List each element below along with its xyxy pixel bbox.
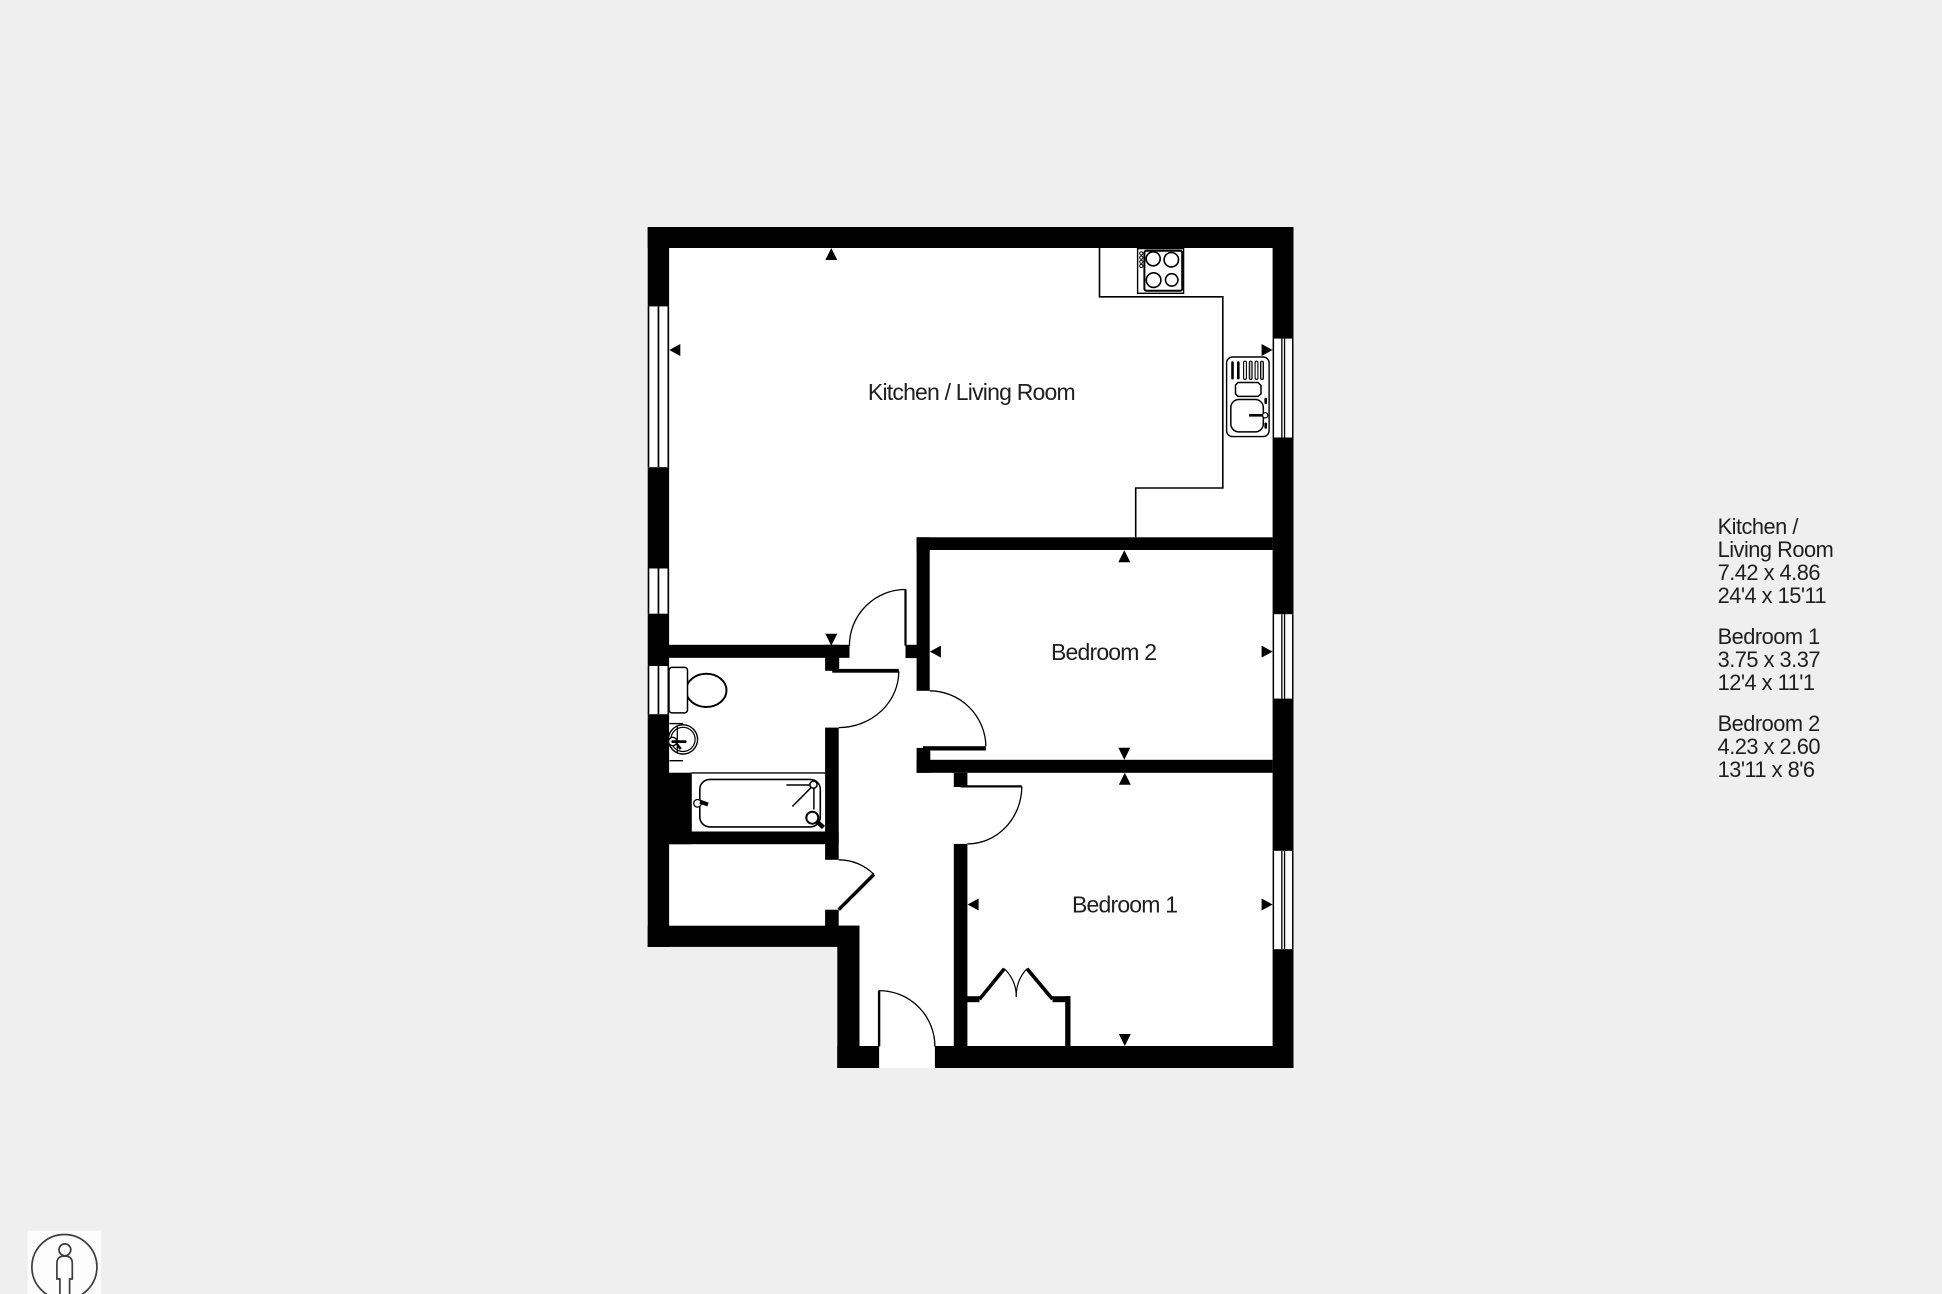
svg-text:Kitchen /: Kitchen / [1718,514,1800,539]
svg-text:24'4 x 15'11: 24'4 x 15'11 [1718,583,1827,608]
svg-text:Kitchen / Living Room: Kitchen / Living Room [868,379,1075,405]
svg-text:Bedroom 1: Bedroom 1 [1072,892,1177,918]
svg-text:Bedroom 2: Bedroom 2 [1051,639,1156,665]
svg-text:13'11 x 8'6: 13'11 x 8'6 [1718,757,1815,782]
svg-text:Bedroom 1: Bedroom 1 [1718,624,1820,649]
svg-text:7.42 x 4.86: 7.42 x 4.86 [1718,560,1821,585]
svg-text:4.23 x 2.60: 4.23 x 2.60 [1718,734,1821,759]
svg-text:Bedroom 2: Bedroom 2 [1718,711,1820,736]
svg-text:Living Room: Living Room [1718,537,1834,562]
svg-text:12'4 x 11'1: 12'4 x 11'1 [1718,670,1815,695]
svg-text:3.75 x 3.37: 3.75 x 3.37 [1718,647,1821,672]
